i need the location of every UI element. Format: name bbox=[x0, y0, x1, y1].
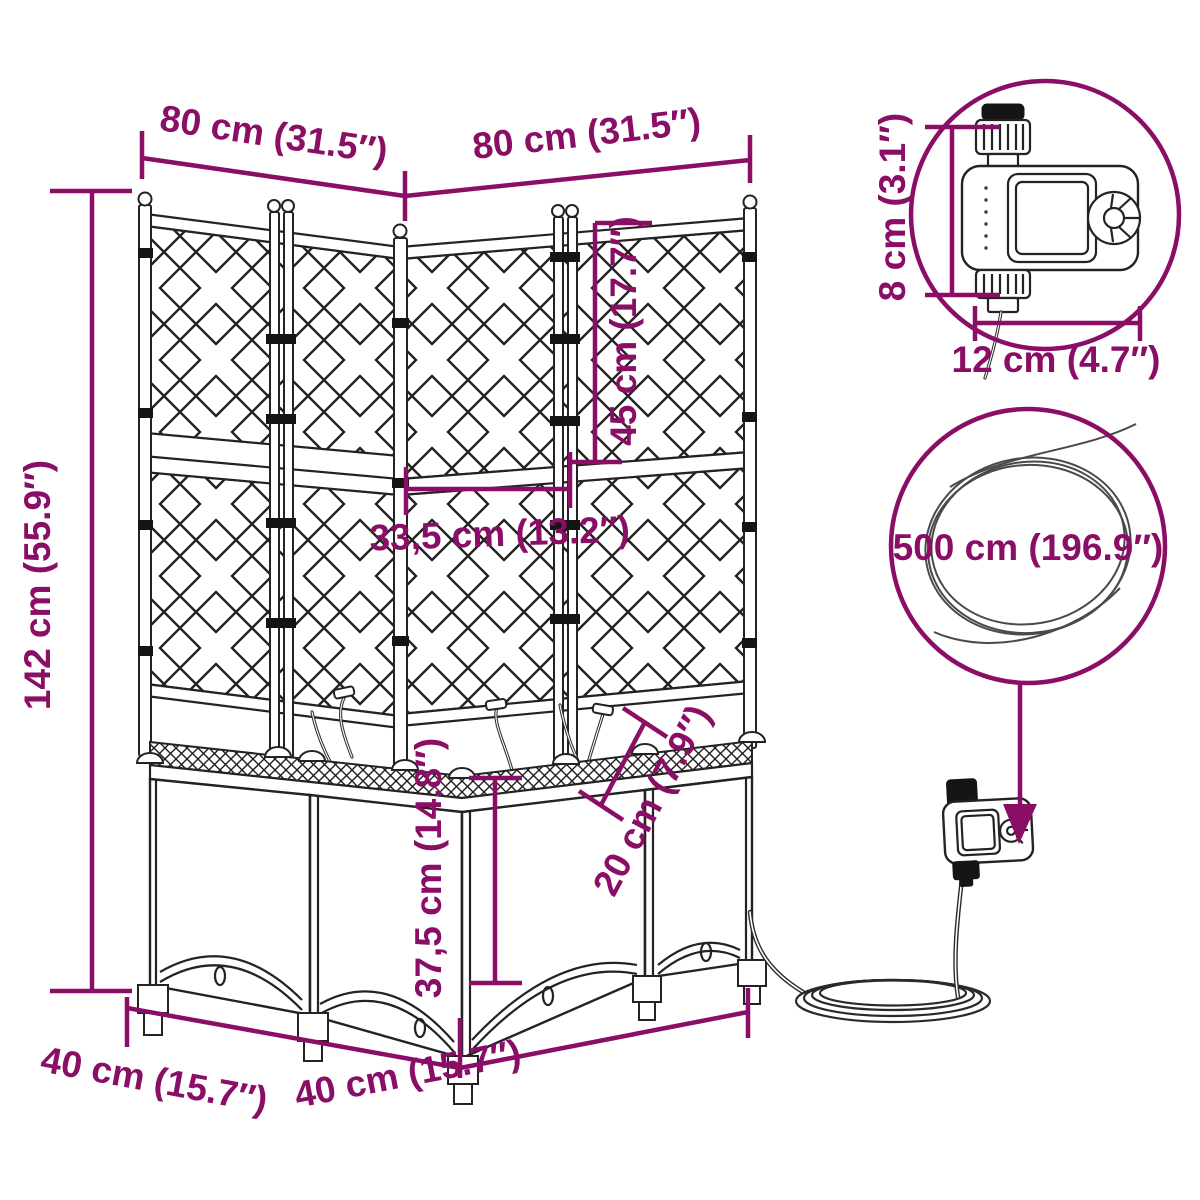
dim-label: 500 cm (196.9″) bbox=[893, 527, 1164, 568]
dim-label: 40 cm (15.7″) bbox=[38, 1039, 271, 1121]
dim-total-height: 142 cm (55.9″) bbox=[17, 191, 132, 991]
diagram-canvas: 80 cm (31.5″) 80 cm (31.5″) 142 cm (55.9… bbox=[0, 0, 1200, 1200]
trellis-post-right bbox=[744, 208, 756, 748]
dim-label: 12 cm (4.7″) bbox=[952, 339, 1161, 380]
dim-label: 80 cm (31.5″) bbox=[157, 97, 390, 171]
dim-label: 8 cm (3.1″) bbox=[872, 113, 913, 301]
hose-detail-circle: 500 cm (196.9″) bbox=[891, 409, 1165, 683]
dim-label: 45 cm (17.7″) bbox=[603, 216, 644, 446]
detail-timer-dial bbox=[1088, 192, 1140, 244]
trellis-post-left bbox=[139, 205, 151, 756]
tap-cap bbox=[982, 104, 1024, 120]
dim-label: 37,5 cm (14.8″) bbox=[408, 738, 449, 998]
trellis-illustration bbox=[138, 193, 757, 776]
hose-coil bbox=[796, 980, 990, 1022]
dim-label: 80 cm (31.5″) bbox=[470, 100, 703, 167]
dim-line bbox=[50, 191, 132, 991]
irrigation-illustration bbox=[750, 776, 1035, 1022]
dim-label: 142 cm (55.9″) bbox=[17, 460, 58, 710]
product-dimension-diagram: 80 cm (31.5″) 80 cm (31.5″) 142 cm (55.9… bbox=[0, 0, 1200, 1200]
dim-width-right: 80 cm (31.5″) bbox=[405, 100, 750, 196]
